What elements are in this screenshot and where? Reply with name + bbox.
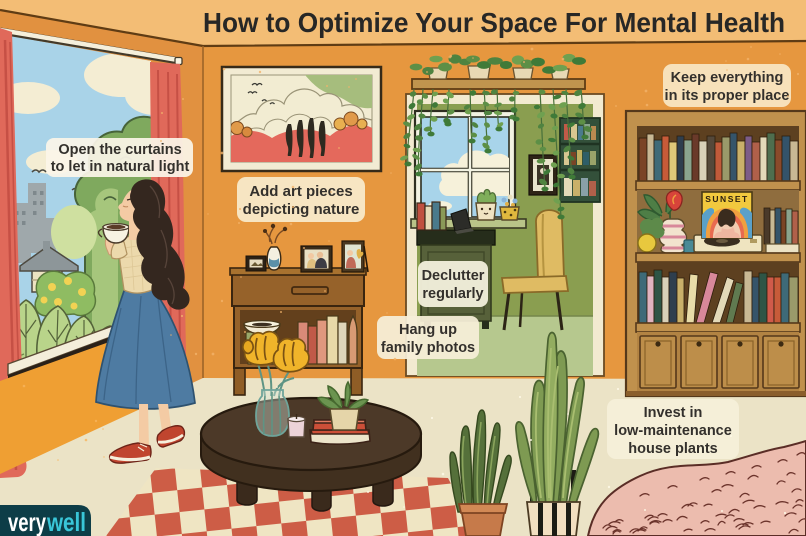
svg-text:family photos: family photos <box>381 340 475 356</box>
svg-text:SUNSET: SUNSET <box>705 194 748 204</box>
svg-text:Open the curtains: Open the curtains <box>58 142 181 158</box>
svg-text:regularly: regularly <box>422 286 483 302</box>
svg-text:Invest in: Invest in <box>644 405 703 421</box>
svg-text:house plants: house plants <box>628 441 717 457</box>
svg-text:low-maintenance: low-maintenance <box>614 423 732 439</box>
svg-text:Hang up: Hang up <box>399 322 457 338</box>
svg-text:depicting nature: depicting nature <box>243 201 360 218</box>
svg-text:verywell: verywell <box>8 507 86 536</box>
svg-text:to let in natural light: to let in natural light <box>51 159 190 175</box>
svg-text:Add art pieces: Add art pieces <box>249 183 352 200</box>
svg-text:in its proper place: in its proper place <box>665 88 790 104</box>
svg-text:Keep everything: Keep everything <box>671 70 784 86</box>
svg-text:How to Optimize Your Space For: How to Optimize Your Space For Mental He… <box>203 7 785 38</box>
svg-text:Declutter: Declutter <box>422 268 485 284</box>
